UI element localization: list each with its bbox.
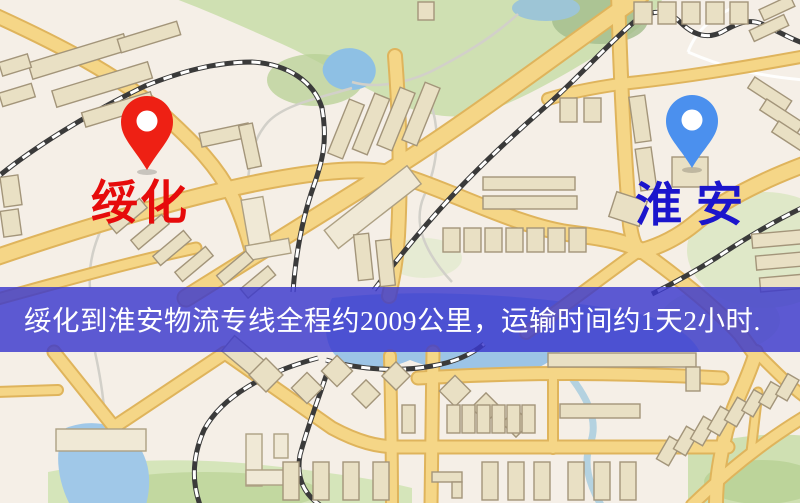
- route-banner: 绥化到淮安物流专线全程约2009公里，运输时间约1天2小时.: [0, 287, 800, 352]
- origin-label: 绥化: [91, 178, 189, 230]
- map-canvas[interactable]: 绥化到淮安物流专线全程约2009公里，运输时间约1天2小时. 绥化 淮安: [0, 0, 800, 503]
- destination-label: 淮安: [635, 180, 757, 232]
- destination-pin-hole: [682, 110, 703, 131]
- origin-pin-hole: [137, 111, 158, 132]
- route-banner-text: 绥化到淮安物流专线全程约2009公里，运输时间约1天2小时.: [24, 305, 761, 336]
